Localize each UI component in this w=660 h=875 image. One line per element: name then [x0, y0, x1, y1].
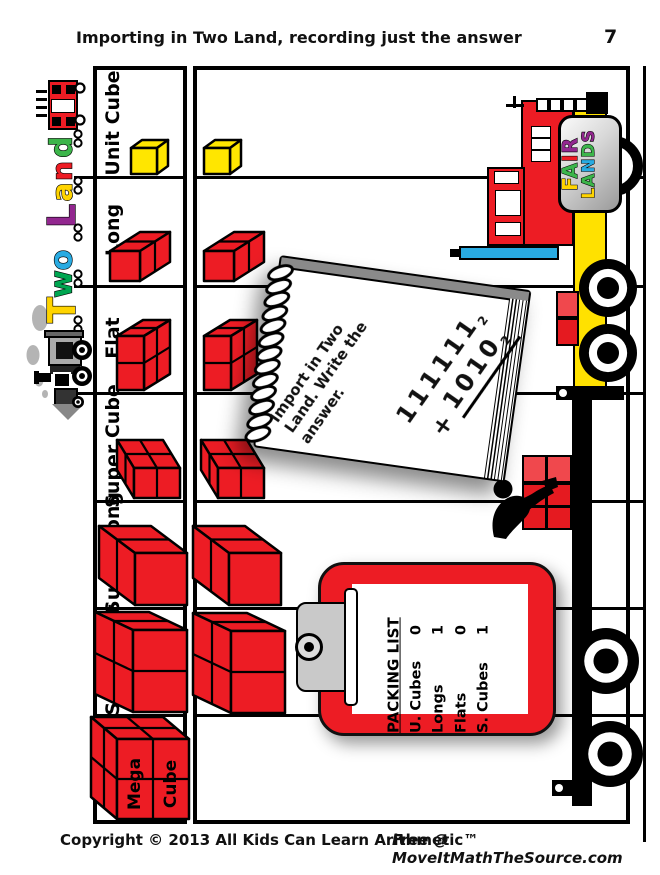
- row-separator: [95, 176, 185, 179]
- item-qty: 0: [406, 625, 428, 635]
- roof-rack-cell: [575, 98, 588, 112]
- truck-exhaust-box: [586, 92, 608, 114]
- packing-list-item: U. Cubes0: [406, 625, 428, 733]
- packing-list-item: S. Cubes1: [473, 625, 495, 733]
- item-qty: 1: [428, 625, 450, 635]
- block-flat: [204, 320, 257, 390]
- block-long: [110, 232, 170, 281]
- notepad-instruction: Import in Two Land. Write the answer.: [266, 293, 397, 447]
- truck-cargo-block: [556, 318, 579, 346]
- block-long: [204, 232, 264, 281]
- truck-cargo-block: [556, 291, 579, 318]
- truck-antenna: [513, 96, 516, 108]
- item-qty: 1: [473, 625, 495, 635]
- item-name: U. Cubes: [406, 635, 428, 733]
- plus-operator: +: [425, 409, 459, 442]
- block-unit-cube: [131, 140, 168, 174]
- sign-letter: S: [579, 129, 599, 142]
- sign-letter: A: [579, 173, 599, 187]
- row-separator-extension: [630, 392, 644, 395]
- spiral-notepad: Import in Two Land. Write the answer. 11…: [253, 255, 532, 482]
- packing-list: PACKING LIST U. Cubes0Longs1Flats0S. Cub…: [385, 565, 496, 733]
- caboose-ladder-rung: [36, 98, 47, 101]
- sign-word-lands: LANDS: [581, 115, 599, 213]
- clipboard-clip-bar: [344, 588, 358, 706]
- caboose-window: [52, 117, 61, 126]
- block-super-long: [99, 526, 187, 605]
- clipboard-clip-knob: [295, 633, 323, 661]
- worksheet-page: Importing in Two Land, recording just th…: [0, 0, 660, 875]
- locomotive-chimney-cap: [34, 371, 39, 384]
- truck-wheel: [577, 257, 639, 319]
- caboose-ladder-rung: [36, 114, 47, 117]
- item-name: Longs: [428, 635, 450, 733]
- roof-rack-cell: [562, 98, 575, 112]
- row-separator: [95, 285, 185, 288]
- mega-cube-label: Mega: [125, 758, 145, 810]
- truck-wheel: [577, 322, 639, 384]
- source-link-text: Free @ MoveItMathTheSource.com: [392, 831, 660, 867]
- train-wheels: [70, 78, 92, 348]
- truck-window: [495, 190, 521, 216]
- packing-list-item: Longs1: [428, 625, 450, 733]
- trailer-wheel: [571, 626, 641, 696]
- trailer-wheel: [575, 719, 645, 789]
- page-number: 7: [604, 26, 617, 48]
- block-super-flat: [193, 613, 285, 713]
- row-separator-extension: [630, 607, 644, 610]
- item-name: Flats: [451, 635, 473, 733]
- hitch-pin: [552, 780, 572, 796]
- item-name: S. Cubes: [473, 635, 495, 733]
- truck-cab-window: [531, 138, 551, 150]
- truck-bumper-tip: [450, 249, 460, 257]
- block-super-cube: [201, 440, 264, 498]
- locomotive-chimney: [38, 373, 51, 382]
- roof-rack-cell: [536, 98, 549, 112]
- truck-bumper: [459, 246, 559, 260]
- truck-roof-rack: [536, 98, 588, 112]
- caboose-ladder-rung: [36, 90, 47, 93]
- packing-list-item: Flats0: [451, 625, 473, 733]
- hitch-pin: [556, 386, 626, 400]
- roof-rack-cell: [549, 98, 562, 112]
- block-super-cube: [117, 440, 180, 498]
- mega-cube-label: Cube: [161, 760, 181, 808]
- row-label-unit-cube: Unit Cube: [102, 70, 124, 175]
- page-title: Importing in Two Land, recording just th…: [76, 28, 522, 47]
- sign-letter: D: [579, 142, 599, 157]
- truck-cab-window: [531, 126, 551, 138]
- block-super-long: [193, 526, 281, 605]
- row-separator-extension: [630, 714, 644, 717]
- sign-letter: L: [579, 187, 599, 199]
- locomotive-wheels: [68, 338, 98, 414]
- block-flat: [117, 320, 170, 390]
- caboose-window: [52, 85, 61, 94]
- truck-window: [494, 171, 519, 184]
- row-separator-extension: [630, 500, 644, 503]
- caboose-ladder-rung: [36, 106, 47, 109]
- item-qty: 0: [451, 625, 473, 635]
- sign-word-fair: FAIR: [560, 115, 581, 213]
- block-super-flat: [95, 612, 187, 712]
- block-unit-cube: [204, 140, 241, 174]
- truck-window: [495, 222, 521, 236]
- packing-list-title: PACKING LIST: [385, 565, 403, 733]
- fair-lands-sign: FAIRLANDS: [558, 115, 622, 213]
- packing-list-items: U. Cubes0Longs1Flats0S. Cubes1: [406, 565, 496, 733]
- sign-letter: N: [579, 158, 599, 173]
- truck-cab-window: [531, 150, 551, 162]
